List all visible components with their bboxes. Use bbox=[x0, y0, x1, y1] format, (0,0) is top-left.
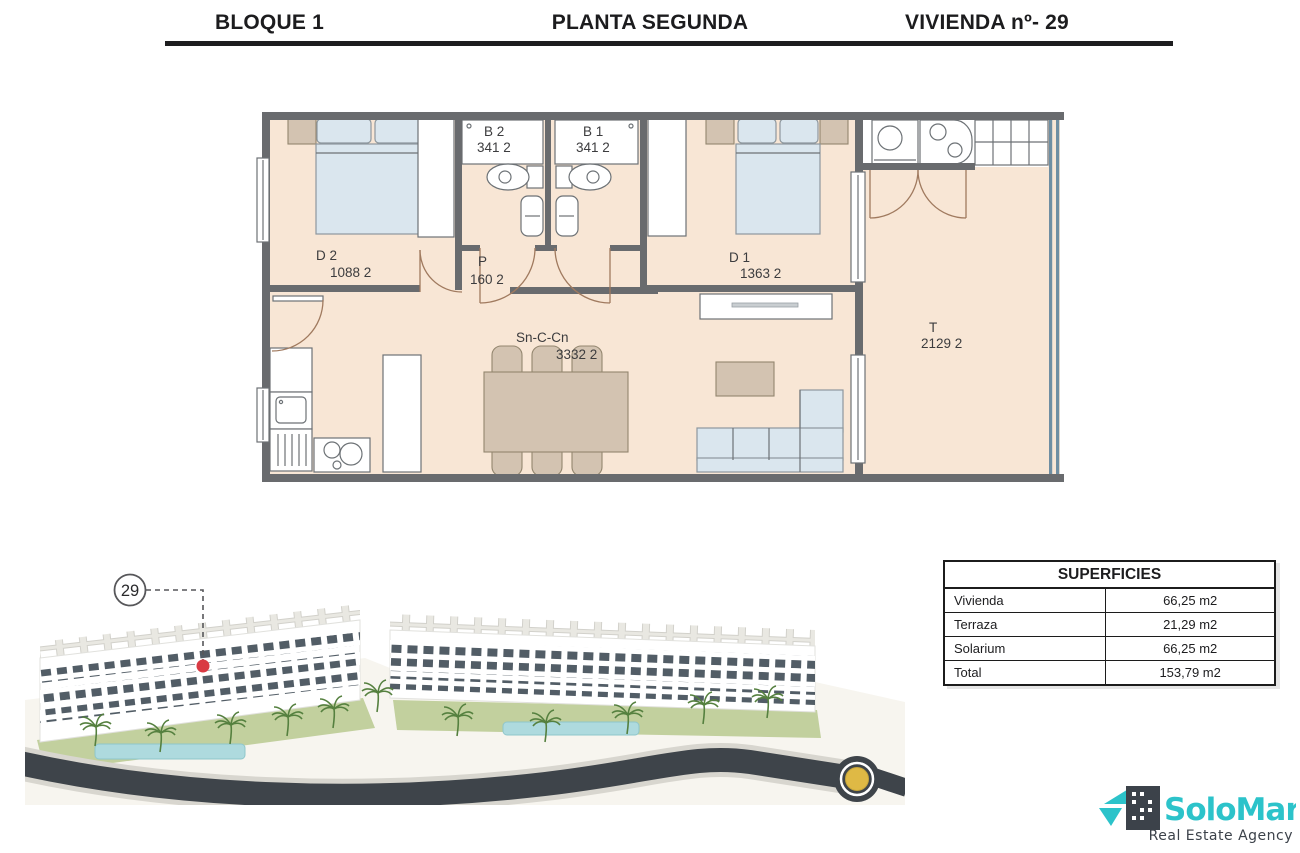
room-area: 1363 2 bbox=[740, 266, 781, 281]
brochure-page: BLOQUE 1 PLANTA SEGUNDA VIVIENDA nº- 29 bbox=[0, 0, 1300, 853]
nightstand bbox=[820, 117, 848, 144]
marker-dot bbox=[197, 660, 210, 673]
room-area: 3332 2 bbox=[556, 347, 597, 362]
floor-title: PLANTA SEGUNDA bbox=[552, 11, 748, 35]
site-render: 29 bbox=[25, 550, 905, 805]
table-row: Solarium 66,25 m2 bbox=[945, 637, 1274, 661]
pillow bbox=[780, 119, 818, 143]
room-area: 1088 2 bbox=[330, 265, 371, 280]
toilet-icon bbox=[569, 164, 611, 190]
room-label: Sn-C-Cn bbox=[516, 330, 569, 345]
room-area: 341 2 bbox=[576, 140, 610, 155]
pool bbox=[95, 744, 245, 759]
bedroom-d1 bbox=[648, 117, 848, 236]
logo-building-icon bbox=[1099, 786, 1160, 830]
table-row: Vivienda 66,25 m2 bbox=[945, 589, 1274, 613]
room-area: 160 2 bbox=[470, 272, 504, 287]
wardrobe bbox=[418, 117, 454, 237]
row-label: Solarium bbox=[945, 637, 1106, 660]
floor-plan: D 2 1088 2 B 2 341 2 B 1 341 2 D 1 1363 … bbox=[240, 95, 1080, 495]
room-label: D 2 bbox=[316, 248, 337, 263]
table-row: Terraza 21,29 m2 bbox=[945, 613, 1274, 637]
surfaces-table: SUPERFICIES Vivienda 66,25 m2 Terraza 21… bbox=[943, 560, 1276, 686]
pillow bbox=[738, 119, 776, 143]
double-bed bbox=[316, 144, 430, 234]
laundry-area bbox=[872, 120, 1048, 165]
row-label: Vivienda bbox=[945, 589, 1106, 612]
building-right bbox=[390, 614, 815, 712]
logo-tagline: Real Estate Agency bbox=[1149, 828, 1293, 844]
row-value: 21,29 m2 bbox=[1106, 617, 1274, 632]
block-title: BLOQUE 1 bbox=[215, 11, 324, 35]
surfaces-table-title: SUPERFICIES bbox=[945, 562, 1274, 589]
entrance-door-leaf bbox=[273, 296, 323, 301]
row-label: Terraza bbox=[945, 613, 1106, 636]
logo-name: SoloMar bbox=[1164, 792, 1296, 828]
pool bbox=[503, 722, 639, 735]
wardrobe bbox=[648, 118, 686, 236]
boiler-icon bbox=[920, 120, 972, 164]
toilet-icon bbox=[487, 164, 529, 190]
marker-number: 29 bbox=[121, 582, 139, 600]
row-label: Total bbox=[945, 661, 1106, 684]
room-label: P bbox=[478, 254, 487, 269]
double-bed bbox=[736, 144, 820, 234]
terrace-balustrade bbox=[1049, 112, 1052, 482]
agency-logo: SoloMar Real Estate Agency bbox=[1096, 778, 1296, 850]
kitchen-island bbox=[383, 355, 421, 472]
pillow bbox=[317, 119, 371, 143]
room-area: 341 2 bbox=[477, 140, 511, 155]
dining-table bbox=[484, 372, 628, 452]
row-value: 66,25 m2 bbox=[1106, 641, 1274, 656]
room-label: D 1 bbox=[729, 250, 750, 265]
nightstand bbox=[706, 117, 734, 144]
room-label: T bbox=[929, 320, 937, 335]
coffee-table bbox=[716, 362, 774, 396]
room-label: B 2 bbox=[484, 124, 504, 139]
room-area: 2129 2 bbox=[921, 336, 962, 351]
kitchen-cabinet bbox=[270, 348, 312, 392]
row-value: 153,79 m2 bbox=[1106, 665, 1274, 680]
header-rule bbox=[165, 41, 1173, 46]
table-row: Total 153,79 m2 bbox=[945, 661, 1274, 684]
room-label: B 1 bbox=[583, 124, 603, 139]
unit-title: VIVIENDA nº- 29 bbox=[905, 11, 1069, 35]
nightstand bbox=[288, 117, 316, 144]
row-value: 66,25 m2 bbox=[1106, 593, 1274, 608]
